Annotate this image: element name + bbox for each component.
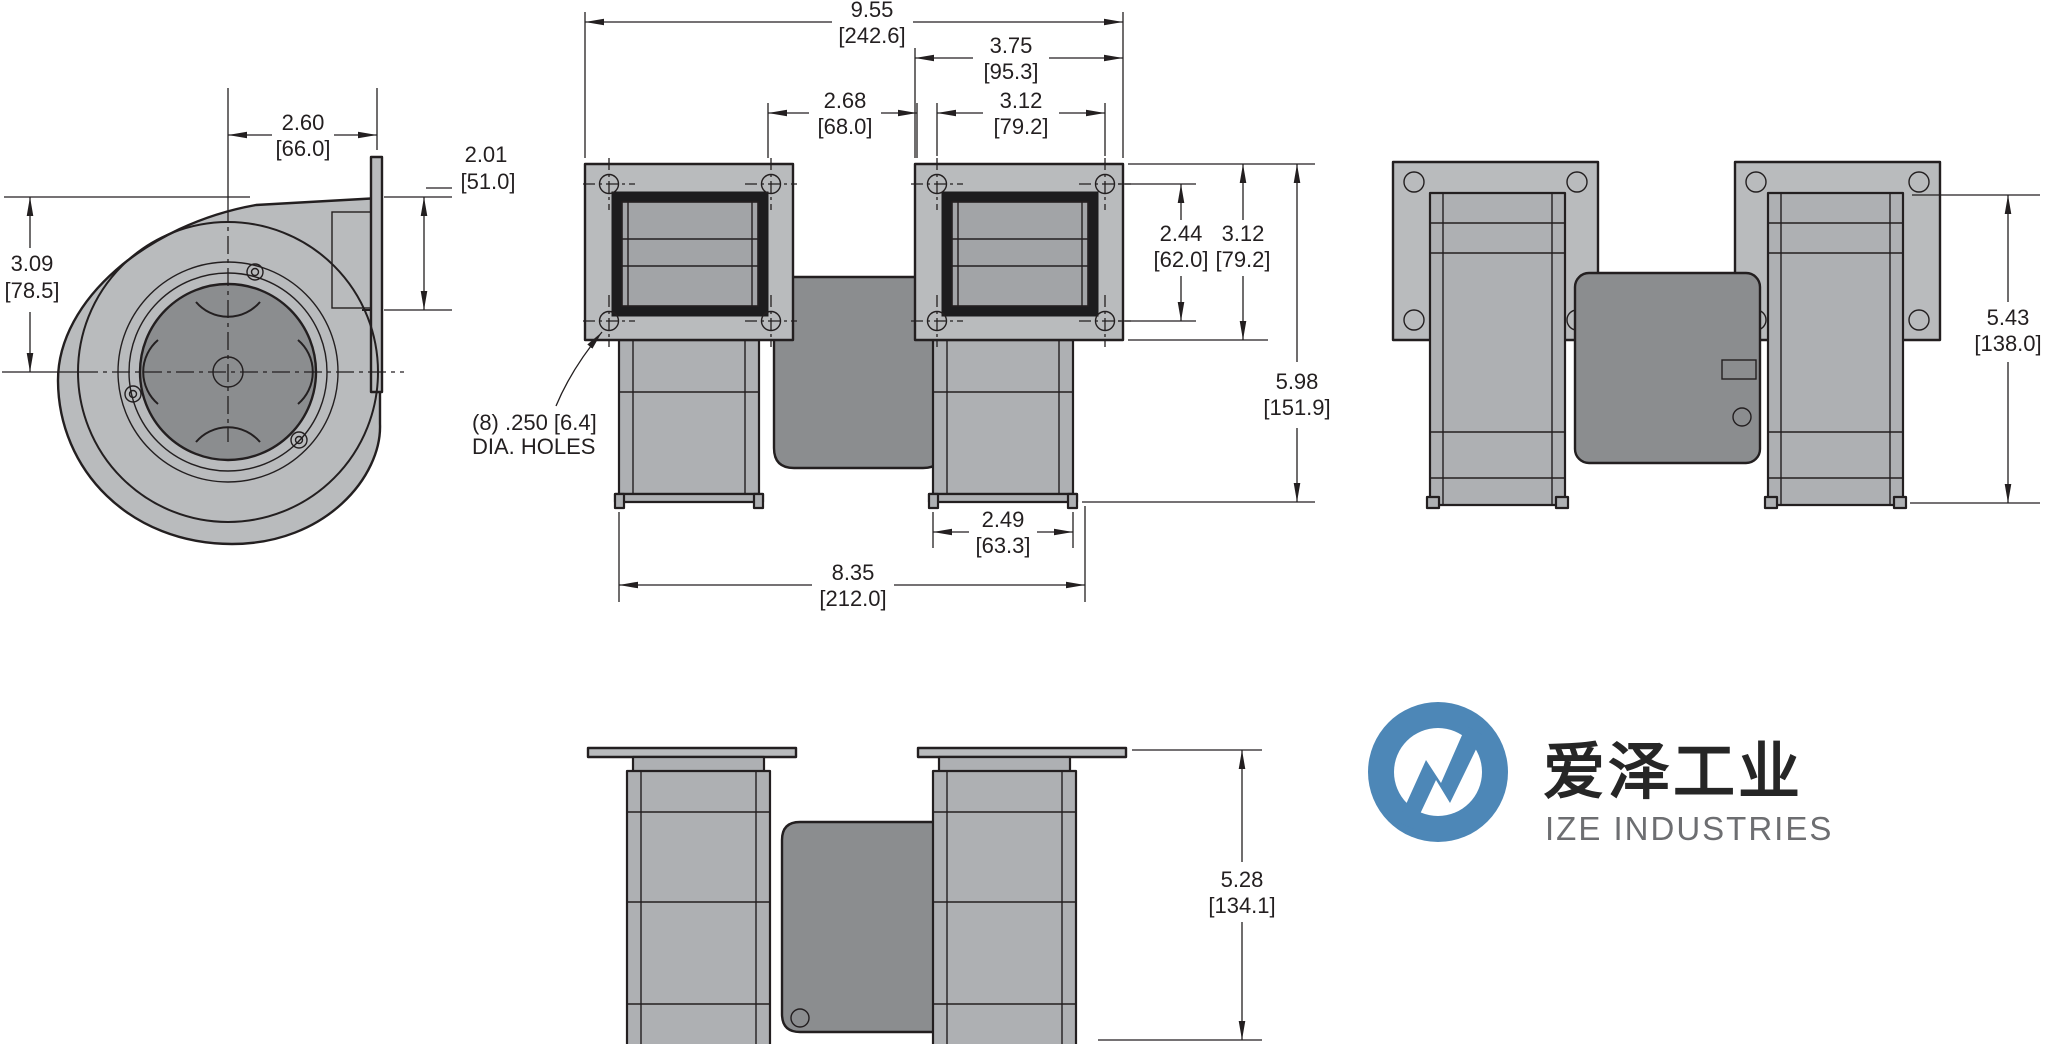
left-outlet-louver <box>612 192 768 316</box>
dim-text: 2.49 <box>982 507 1025 532</box>
dim-text: [51.0] <box>460 169 515 194</box>
dim-text: 5.98 <box>1276 369 1319 394</box>
note-text-line2: DIA. HOLES <box>472 434 595 459</box>
end-view-twin-blower: 5.43 [138.0] <box>1393 162 2042 508</box>
dim-text: 3.12 <box>1000 88 1043 113</box>
dim-text: [79.2] <box>993 114 1048 139</box>
logo-text-english: IZE INDUSTRIES <box>1545 810 1833 847</box>
technical-drawing-page: 2.60 [66.0] 2.01 [51.0] 3.09 [78.5] <box>0 0 2048 1044</box>
dim-text: 5.28 <box>1221 867 1264 892</box>
dim-hole-pitch-horizontal: 3.12 [79.2] <box>937 88 1105 156</box>
dim-hole-pitch-vertical: 2.44 [62.0] <box>1118 184 1209 321</box>
right-scroll-column <box>1765 193 1906 508</box>
drawing-svg: 2.60 [66.0] 2.01 [51.0] 3.09 [78.5] <box>0 0 2048 1044</box>
logo-text-chinese: 爱泽工业 <box>1543 738 1803 807</box>
right-flange-edge-plate <box>918 748 1126 757</box>
dim-text: [138.0] <box>1974 331 2041 356</box>
dim-text: 2.68 <box>824 88 867 113</box>
dim-text: [78.5] <box>4 278 59 303</box>
right-housing-body <box>929 340 1077 508</box>
bottom-view-twin-blower: 5.28 [134.1] <box>588 748 1276 1044</box>
dim-scroll-depth: 2.60 [66.0] <box>228 88 377 161</box>
holes-note: (8) .250 [6.4] DIA. HOLES <box>472 332 602 459</box>
right-outlet-louver <box>942 192 1098 316</box>
dim-flange-gap: 2.68 [68.0] <box>768 88 917 158</box>
side-view-blower-scroll: 2.60 [66.0] 2.01 [51.0] 3.09 [78.5] <box>2 88 516 544</box>
dim-text: 2.60 <box>282 110 325 135</box>
dim-text: [151.9] <box>1263 395 1330 420</box>
dim-text: 2.44 <box>1160 221 1203 246</box>
dim-text: [95.3] <box>983 59 1038 84</box>
dim-text: [63.3] <box>975 533 1030 558</box>
motor-bottom <box>782 822 954 1032</box>
note-text-line1: (8) .250 [6.4] <box>472 410 597 435</box>
motor-side <box>1575 273 1760 463</box>
dim-text: [62.0] <box>1153 247 1208 272</box>
left-housing-bottom <box>627 757 770 1044</box>
dim-text: 3.12 <box>1222 221 1265 246</box>
dim-text: 3.75 <box>990 33 1033 58</box>
front-view-twin-blower: 9.55 [242.6] 3.75 [95.3] 2.68 [68.0] 3.1… <box>472 0 1331 611</box>
dim-text: [66.0] <box>275 136 330 161</box>
left-scroll-column <box>1427 193 1568 508</box>
dim-text: 5.43 <box>1987 305 2030 330</box>
ize-logo: 爱泽工业 IZE INDUSTRIES <box>1368 702 1833 847</box>
left-housing-body <box>615 340 763 508</box>
right-housing-bottom <box>933 757 1076 1044</box>
dim-overall-depth: 5.28 [134.1] <box>1098 750 1276 1040</box>
left-flange-edge-plate <box>588 748 796 757</box>
dim-text: 9.55 <box>851 0 894 22</box>
dim-text: [79.2] <box>1215 247 1270 272</box>
dim-body-width: 2.49 [63.3] <box>933 507 1073 558</box>
dim-outlet-height: 2.01 [51.0] <box>384 142 516 310</box>
dim-text: 3.09 <box>11 251 54 276</box>
dim-text: [242.6] <box>838 23 905 48</box>
dim-text: [68.0] <box>817 114 872 139</box>
dim-text: [134.1] <box>1208 893 1275 918</box>
dim-text: 2.01 <box>465 142 508 167</box>
dim-text: 8.35 <box>832 560 875 585</box>
dim-text: [212.0] <box>819 586 886 611</box>
